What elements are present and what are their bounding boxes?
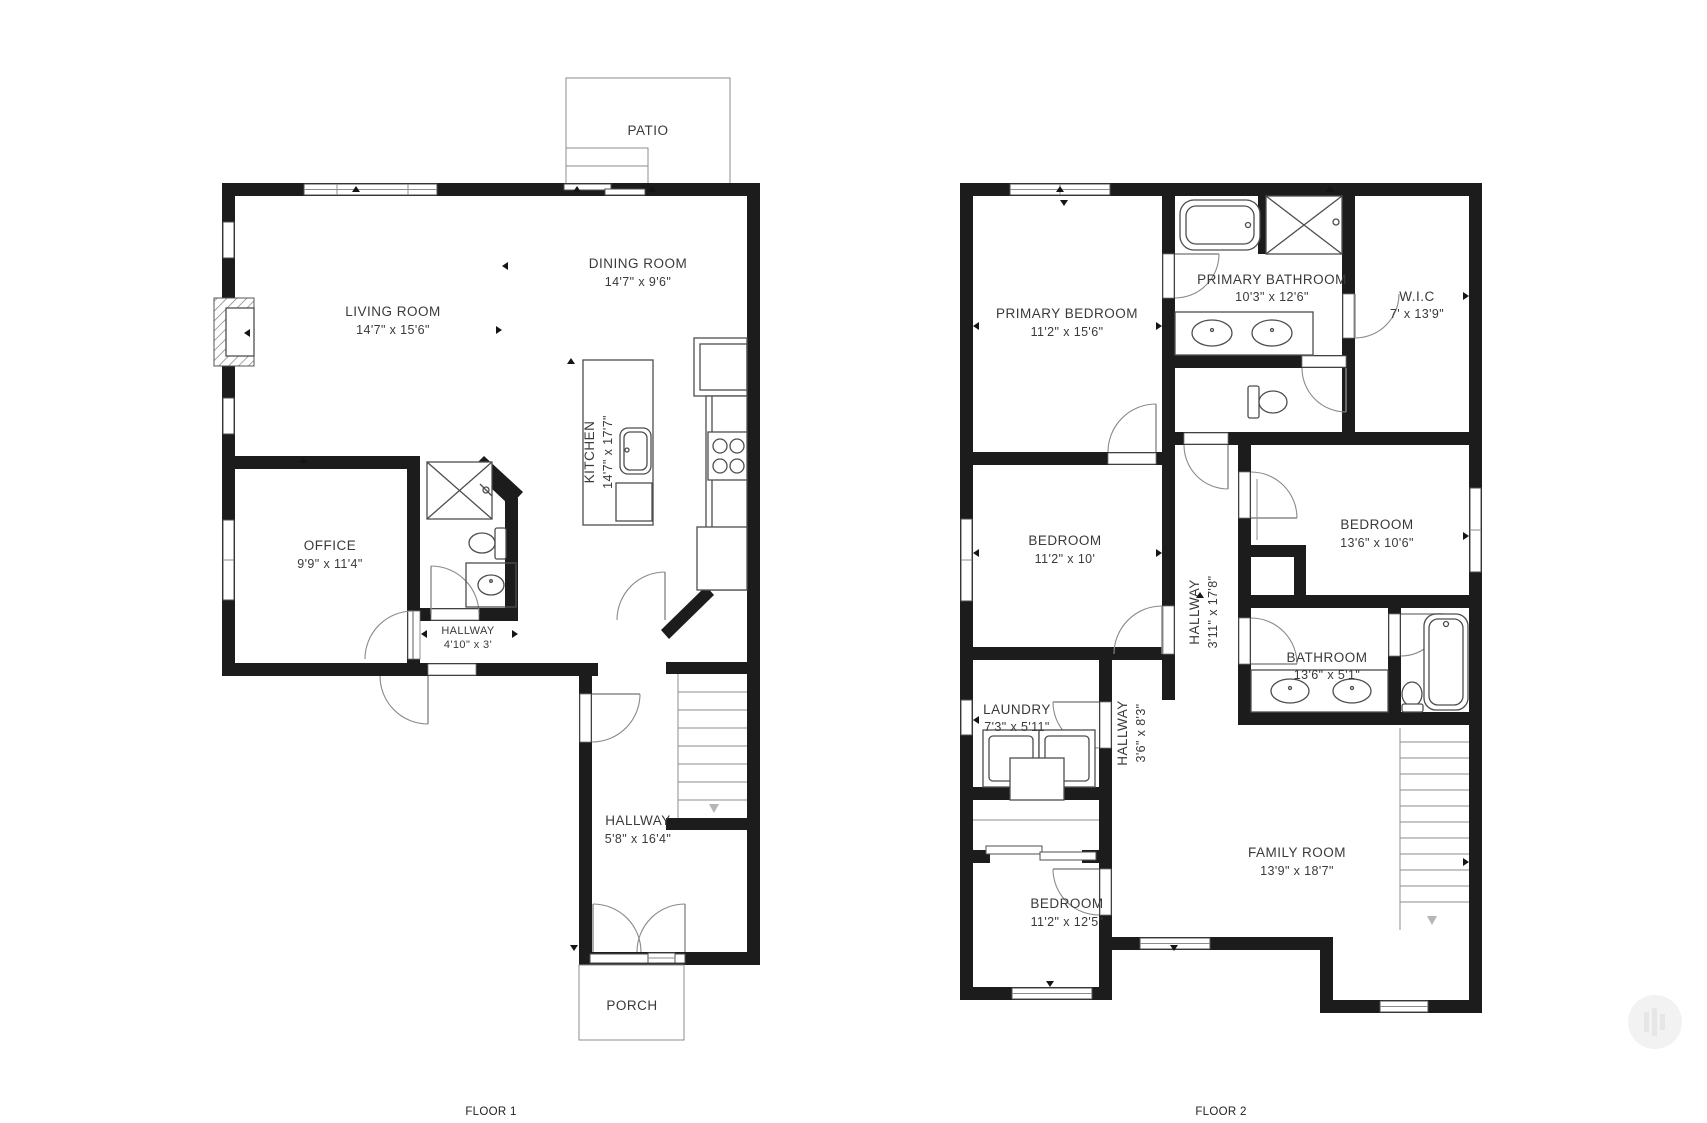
patio-label: PATIO (627, 123, 668, 138)
linen-closet-door (1184, 433, 1228, 489)
bedroom-mid-dims: 11'2" x 10' (1035, 552, 1096, 566)
family-room-dims: 13'9" x 18'7" (1260, 864, 1334, 878)
toilet (1402, 682, 1423, 712)
stove (708, 432, 747, 480)
hallway-spine-dims: 3'11" x 17'8" (1206, 576, 1220, 649)
floor-plan-page: PATIO DINING ROOM 14'7" x 9'6" LIVING RO… (0, 0, 1707, 1123)
hallway-side-door (580, 694, 640, 742)
entry-door-left (593, 904, 641, 952)
kitchen-dims: 14'7" x 17'7" (601, 415, 615, 489)
floor-plan-drawing: PATIO DINING ROOM 14'7" x 9'6" LIVING RO… (0, 0, 1707, 1123)
bedroom-bottom-dims: 11'2" x 12'5" (1031, 915, 1104, 929)
hallway-spine-label: HALLWAY (1187, 579, 1202, 645)
hallway-small-label: HALLWAY (441, 625, 495, 637)
wic-dims: 7' x 13'9" (1390, 307, 1444, 321)
fireplace (214, 298, 254, 366)
toilet (1248, 386, 1287, 418)
primary-bedroom-door (1108, 404, 1156, 464)
watermark-logo (1628, 995, 1682, 1049)
floor2-title: FLOOR 2 (1195, 1106, 1246, 1118)
primary-bathroom-label: PRIMARY BATHROOM (1197, 272, 1347, 287)
hallway-lower-dims: 3'6" x 8'3" (1134, 703, 1148, 762)
pantry-closet-door (617, 572, 665, 620)
bathtub (1424, 614, 1468, 710)
bedroom-mid-door (1114, 606, 1174, 654)
double-vanity (1175, 312, 1313, 355)
office-label: OFFICE (304, 538, 357, 553)
primary-bathroom-dims: 10'3" x 12'6" (1235, 290, 1309, 304)
bedroom-right-dims: 13'6" x 10'6" (1340, 536, 1414, 550)
kitchen-label: KITCHEN (582, 421, 597, 484)
floor1-walls (222, 183, 760, 965)
floor1-stairs (678, 674, 747, 818)
kitchen-counter (694, 338, 747, 590)
primary-bathroom-fixtures (1175, 196, 1342, 418)
water-closet-door (1302, 356, 1346, 412)
dishwasher (616, 483, 652, 521)
living-label: LIVING ROOM (345, 304, 441, 319)
bedroom-right-label: BEDROOM (1340, 517, 1413, 532)
floor2-stairs (1400, 728, 1469, 930)
bathroom1-door (431, 566, 479, 620)
floor1-windows (223, 184, 685, 963)
bedroom-bottom-label: BEDROOM (1030, 896, 1103, 911)
dining-label: DINING ROOM (589, 256, 688, 271)
primary-bedroom-label: PRIMARY BEDROOM (996, 306, 1138, 321)
office-door (365, 611, 420, 659)
hallway-main-dims: 5'8" x 16'4" (605, 832, 671, 846)
patio-slider-door (564, 184, 611, 190)
floor1-plan: PATIO DINING ROOM 14'7" x 9'6" LIVING RO… (214, 78, 760, 1118)
family-room-label: FAMILY ROOM (1248, 845, 1346, 860)
laundry-label: LAUNDRY (983, 702, 1051, 717)
office-dims: 9'9" x 11'4" (297, 557, 362, 571)
primary-bedroom-dims: 11'2" x 15'6" (1031, 325, 1104, 339)
laundry-dims: 7'3" x 5'11" (984, 720, 1049, 734)
bathroom2-dims: 13'6" x 5'1" (1294, 668, 1360, 682)
floor1-title: FLOOR 1 (465, 1106, 516, 1118)
toilet (469, 528, 506, 559)
hallway-main-label: HALLWAY (605, 813, 671, 828)
dining-dims: 14'7" x 9'6" (605, 275, 671, 289)
floor2-plan: PRIMARY BEDROOM 11'2" x 15'6" PRIMARY BA… (960, 183, 1482, 1118)
wic-label: W.I.C (1399, 289, 1435, 304)
porch-label: PORCH (606, 998, 657, 1013)
closet-sliding-doors (973, 820, 1099, 860)
living-dims: 14'7" x 15'6" (356, 323, 430, 337)
stairs-down-arrow (709, 804, 719, 813)
bedroom-mid-label: BEDROOM (1028, 533, 1101, 548)
bedroom-right-door (1239, 472, 1297, 518)
bathroom2-label: BATHROOM (1287, 650, 1368, 665)
floor1-doors (365, 566, 685, 952)
entry-door-right (637, 904, 685, 952)
stairs-down-arrow (1427, 916, 1437, 925)
refrigerator (694, 338, 747, 396)
hallway-lower-label: HALLWAY (1115, 700, 1130, 766)
hallway-small-dims: 4'10" x 3' (444, 639, 492, 651)
